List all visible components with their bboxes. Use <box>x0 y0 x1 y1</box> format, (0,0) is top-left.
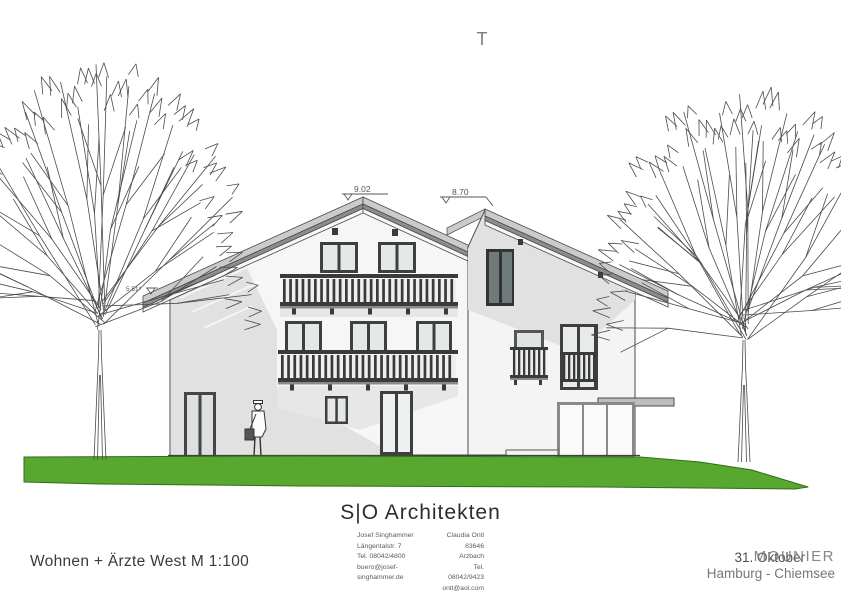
upper-balcony <box>280 274 458 315</box>
contact-right: Claudia Ontl 83646 Arzbach Tel. 08042/94… <box>439 531 484 595</box>
middle-window-1 <box>285 321 322 353</box>
contact-phone: Tel. 08042/9423 <box>439 563 484 584</box>
middle-balcony <box>278 350 458 391</box>
contact-email: ontl@aol.com <box>439 584 484 595</box>
level-marker-side-ridge: 8.70 <box>440 187 493 206</box>
contact-phone: Tel. 08042/4800 <box>357 552 439 563</box>
ground-window-small <box>325 396 348 424</box>
side-ground-doors <box>557 402 635 459</box>
sheet-title: Wohnen + Ärzte West M 1:100 <box>30 553 249 571</box>
attic-window-left <box>318 242 360 275</box>
svg-text:9.02: 9.02 <box>354 184 371 194</box>
grass <box>24 456 808 489</box>
contact-name: Claudia Ontl <box>439 531 484 542</box>
drawing-sheet: 9.02 8.70 5.51⁵ T S|O Architekten Josef … <box>0 0 841 595</box>
crop-mark: T <box>477 29 488 49</box>
contact-left: Josef Singhammer Längentalstr. 7 Tel. 08… <box>357 531 439 595</box>
side-gable-window <box>486 249 514 306</box>
stamp-location: Hamburg - Chiemsee <box>707 566 835 582</box>
contact-address: Längentalstr. 7 <box>357 542 439 553</box>
ground-french-door <box>380 391 413 455</box>
contact-email: buero@josef-singhammer.de <box>357 563 439 584</box>
side-small-balcony <box>510 347 548 385</box>
contact-address: 83646 Arzbach <box>439 542 484 563</box>
middle-window-3 <box>416 321 452 353</box>
svg-text:8.70: 8.70 <box>452 187 469 197</box>
firm-contacts: Josef Singhammer Längentalstr. 7 Tel. 08… <box>357 531 484 595</box>
middle-window-2 <box>350 321 387 353</box>
contact-name: Josef Singhammer <box>357 531 439 542</box>
stamp-watermark: MOUNIER <box>754 549 835 565</box>
stamp-block: 31. Oktober MOUNIER Hamburg - Chiemsee <box>707 550 835 582</box>
side-french-window <box>560 324 598 390</box>
ground-door-left <box>184 392 216 459</box>
firm-name: S|O Architekten <box>0 501 841 525</box>
attic-window-right <box>376 242 418 275</box>
